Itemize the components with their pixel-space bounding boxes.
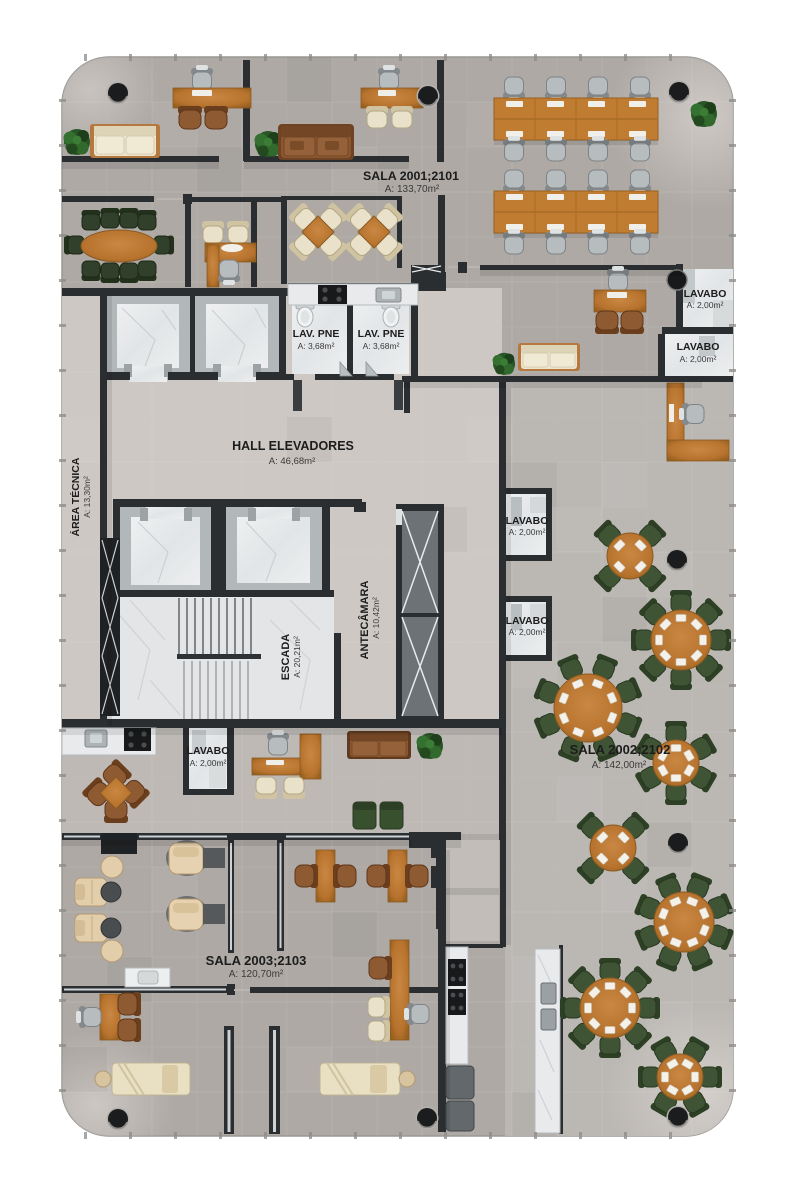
svg-text:ESCADA: ESCADA <box>280 634 292 681</box>
svg-text:ÁREA TÉCNICA: ÁREA TÉCNICA <box>69 457 82 536</box>
svg-text:A: 3,68m²: A: 3,68m² <box>298 341 335 351</box>
svg-text:A: 46,68m²: A: 46,68m² <box>269 456 315 467</box>
svg-text:A: 2,00m²: A: 2,00m² <box>680 354 717 364</box>
svg-text:A: 142,00m²: A: 142,00m² <box>592 760 647 771</box>
svg-text:A: 3,68m²: A: 3,68m² <box>363 341 400 351</box>
svg-text:A: 2,00m²: A: 2,00m² <box>509 527 546 537</box>
svg-text:LAVABO: LAVABO <box>506 615 549 627</box>
svg-text:A: 10,42m²: A: 10,42m² <box>371 597 381 639</box>
svg-text:A: 2,00m²: A: 2,00m² <box>687 300 724 310</box>
svg-text:HALL ELEVADORES: HALL ELEVADORES <box>232 439 354 453</box>
svg-text:LAVABO: LAVABO <box>677 341 720 353</box>
svg-text:ANTECÂMARA: ANTECÂMARA <box>358 581 371 660</box>
svg-text:LAVABO: LAVABO <box>187 745 230 757</box>
svg-text:SALA 2002;2102: SALA 2002;2102 <box>570 742 671 757</box>
svg-text:A: 2,00m²: A: 2,00m² <box>190 758 227 768</box>
svg-text:A: 2,00m²: A: 2,00m² <box>509 627 546 637</box>
svg-text:SALA 2003;2103: SALA 2003;2103 <box>206 953 307 968</box>
svg-text:LAV. PNE: LAV. PNE <box>358 328 405 340</box>
svg-text:LAVABO: LAVABO <box>684 288 727 300</box>
svg-text:LAV. PNE: LAV. PNE <box>293 328 340 340</box>
svg-text:A: 13,30m²: A: 13,30m² <box>82 476 92 518</box>
svg-text:LAVABO: LAVABO <box>506 515 549 527</box>
svg-text:A: 120,70m²: A: 120,70m² <box>229 969 284 980</box>
svg-text:SALA 2001;2101: SALA 2001;2101 <box>363 169 459 183</box>
svg-text:A: 20,21m²: A: 20,21m² <box>292 636 302 678</box>
svg-text:A: 133,70m²: A: 133,70m² <box>385 184 440 195</box>
